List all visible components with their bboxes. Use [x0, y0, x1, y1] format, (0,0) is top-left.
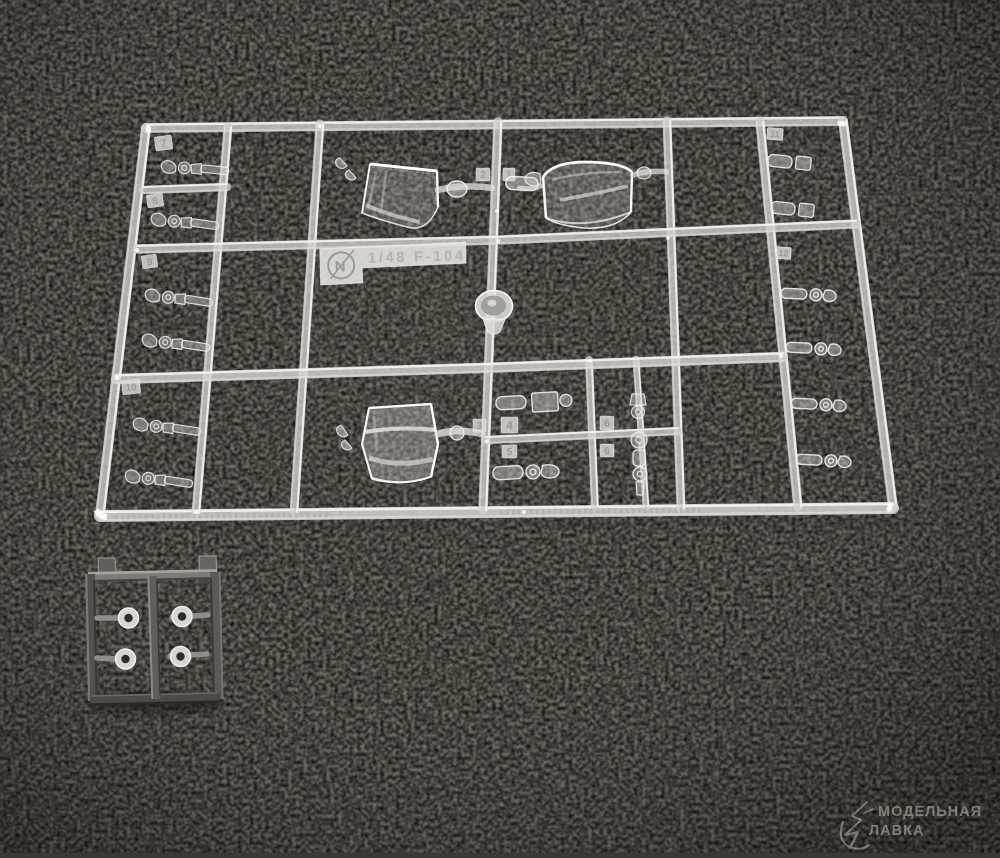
svg-text:4: 4: [506, 418, 513, 432]
svg-text:11: 11: [770, 129, 780, 140]
svg-text:ЛАВКА: ЛАВКА: [869, 823, 924, 839]
svg-text:6: 6: [604, 446, 610, 457]
svg-text:N: N: [335, 258, 346, 275]
svg-text:5: 5: [507, 447, 513, 458]
svg-text:12: 12: [778, 248, 789, 259]
svg-text:МОДЕЛЬНАЯ: МОДЕЛЬНАЯ: [878, 804, 982, 820]
svg-text:1/48 F-104: 1/48 F-104: [368, 248, 463, 266]
svg-text:10: 10: [125, 382, 138, 394]
svg-text:6: 6: [604, 418, 610, 430]
svg-text:2: 2: [480, 170, 486, 181]
